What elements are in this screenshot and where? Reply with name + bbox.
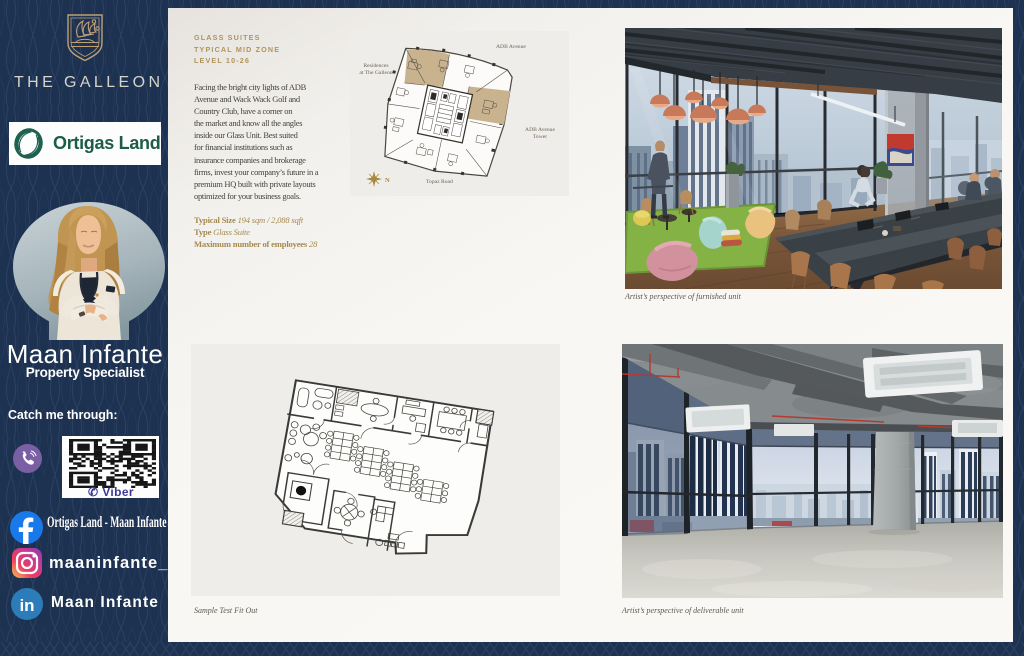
svg-text:in: in	[19, 596, 34, 615]
svg-text:Topaz Road: Topaz Road	[426, 179, 453, 185]
svg-text:Residences: Residences	[363, 63, 388, 69]
svg-text:at The Galleon: at The Galleon	[359, 70, 392, 76]
svg-text:ADB Avenue: ADB Avenue	[496, 44, 526, 50]
svg-text:Tower: Tower	[533, 134, 547, 140]
svg-text:N: N	[385, 177, 390, 184]
svg-text:ADB Avenue: ADB Avenue	[525, 127, 555, 133]
